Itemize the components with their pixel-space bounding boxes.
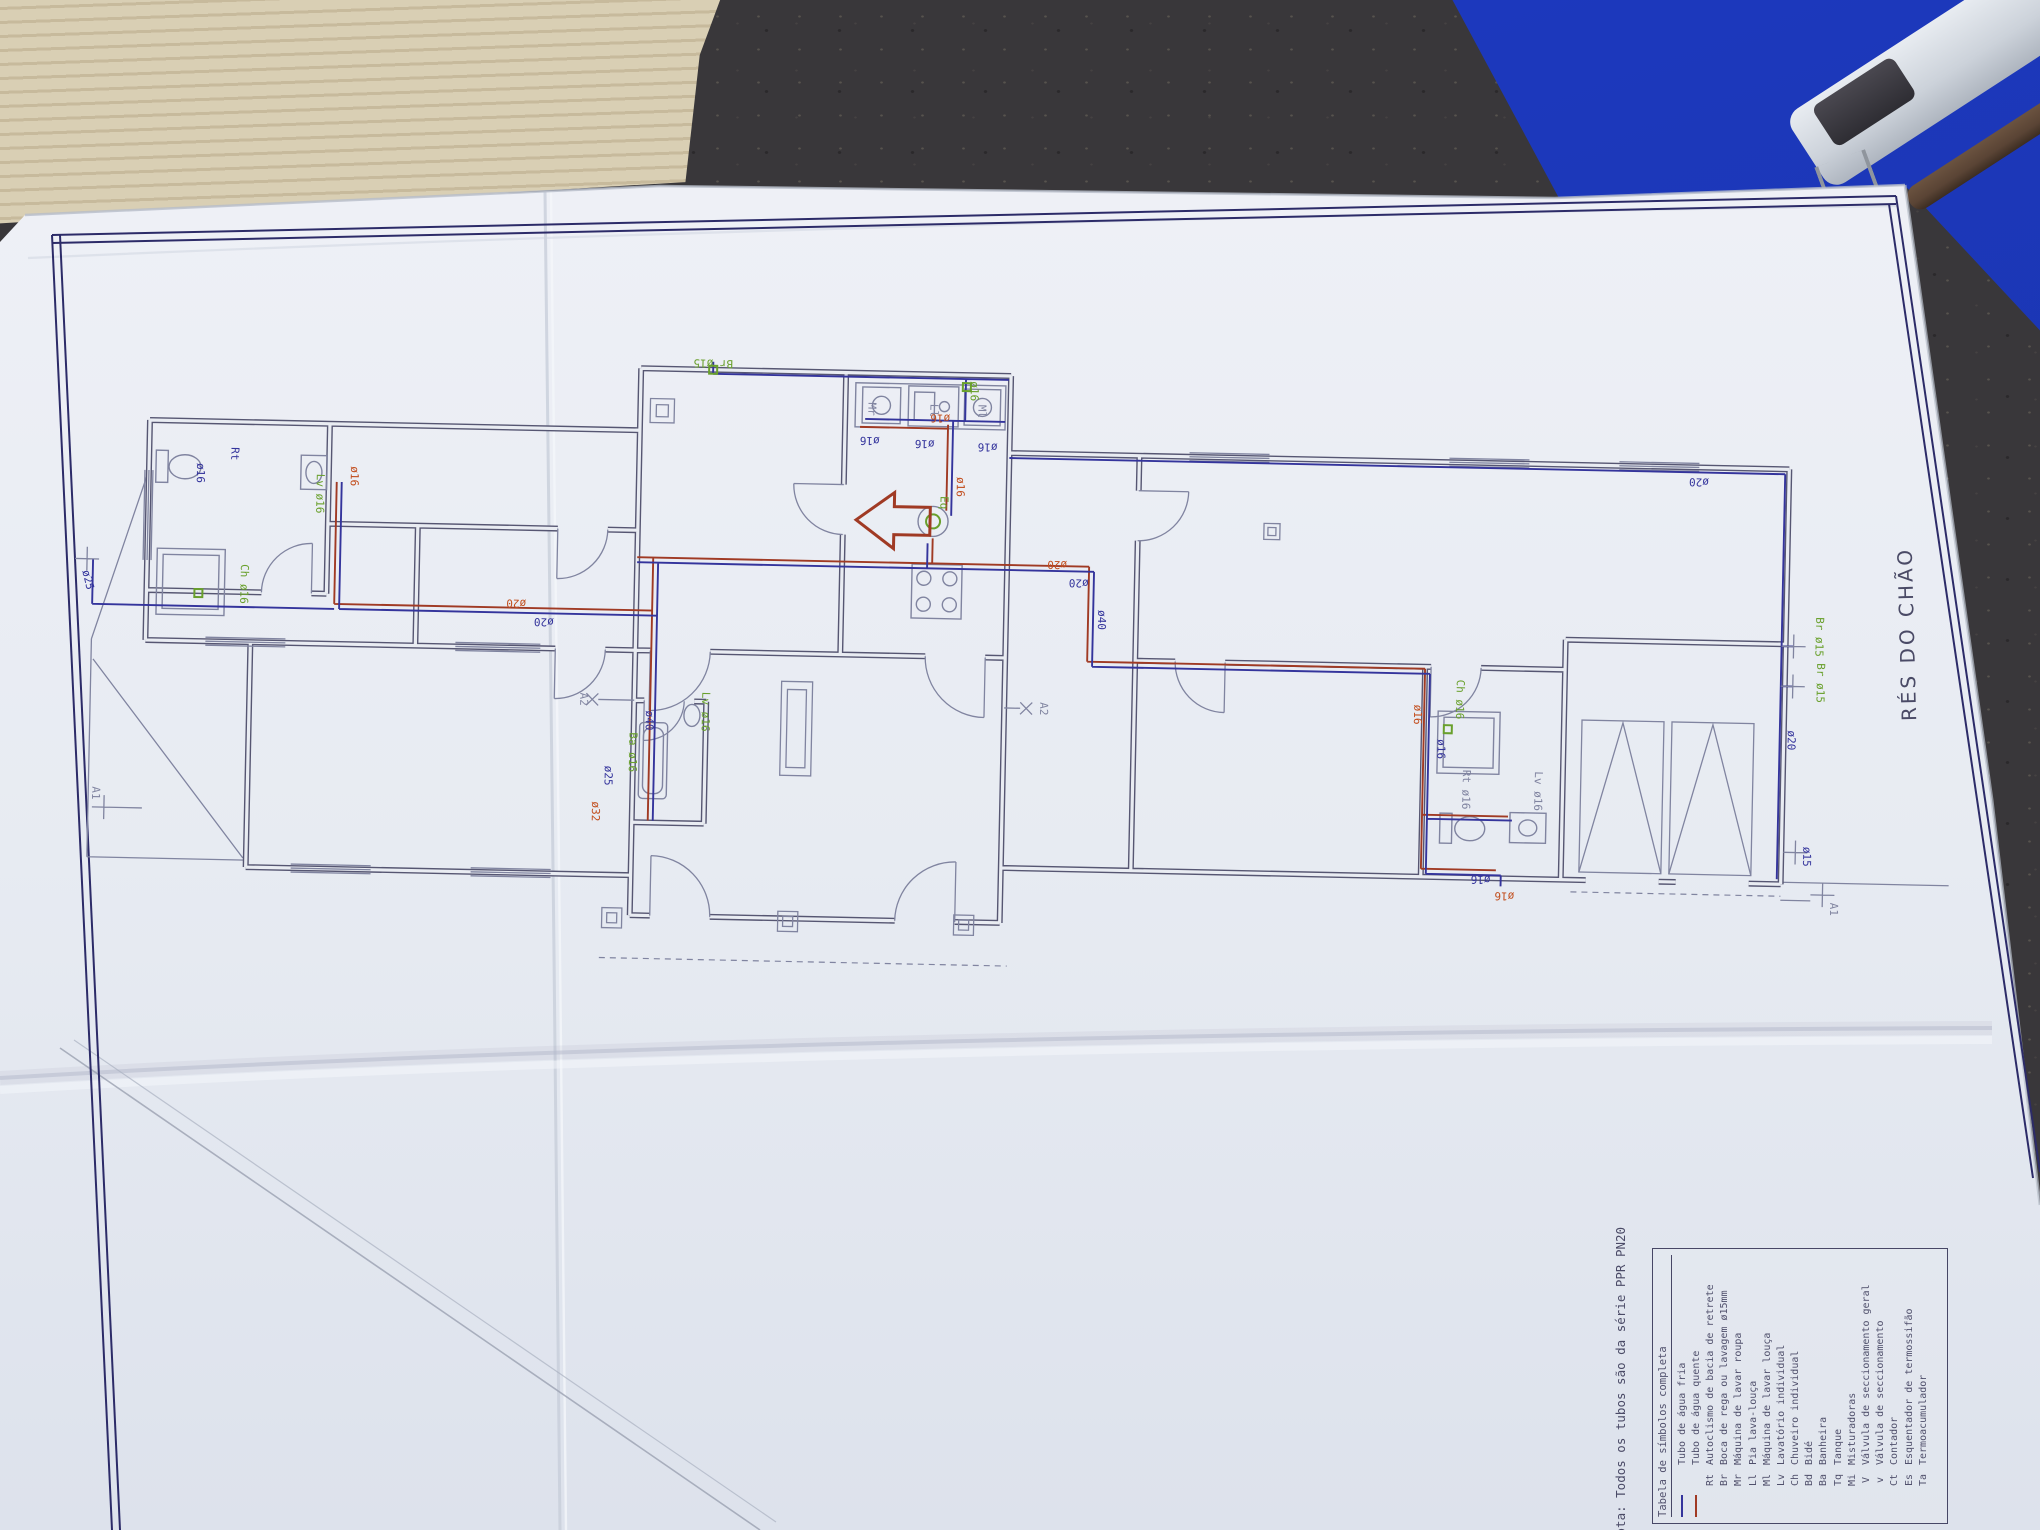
legend-swatch <box>1809 1495 1811 1517</box>
plan-label: ø40 <box>1095 610 1108 630</box>
legend-label: Autoclismo de bacia de retrete <box>1705 1255 1716 1465</box>
legend-code: Tq <box>1833 1470 1844 1490</box>
legend-swatch <box>1780 1495 1782 1517</box>
legend-label: Tubo de água quente <box>1691 1255 1702 1465</box>
legend-label: Tanque <box>1833 1255 1844 1465</box>
plan-label: ø20 <box>1069 576 1089 589</box>
legend-swatch <box>1851 1495 1853 1517</box>
plan-label: Rt <box>228 447 241 461</box>
legend-code: Mr <box>1733 1470 1744 1490</box>
legend-swatch <box>1908 1495 1910 1517</box>
plan-label: A1 <box>1827 903 1840 917</box>
plan-label: ø16 <box>1494 889 1514 902</box>
legend-row: V Válvula de seccionamento geral <box>1859 1255 1873 1517</box>
legend-code: Rt <box>1705 1470 1716 1490</box>
legend-label: Misturadoras <box>1847 1255 1858 1465</box>
legend-row: Ta Termoacumulador <box>1916 1255 1930 1517</box>
legend-row: Mi Misturadoras <box>1845 1255 1859 1517</box>
legend-row: Bd Bidé <box>1803 1255 1817 1517</box>
legend-code: Ml <box>1762 1470 1773 1490</box>
legend-label: Lavatório individual <box>1776 1255 1787 1465</box>
plan-label: Lv ø16 <box>699 692 713 732</box>
plan-label: Rt ø16 <box>1459 770 1473 810</box>
drawing-note: Nota: Todos os tubos são da série PPR PN… <box>1613 1213 1631 1530</box>
legend-code: Ta <box>1918 1470 1929 1490</box>
legend-swatch <box>1752 1495 1754 1517</box>
legend-swatch <box>1738 1495 1740 1517</box>
plan-label: ø15 <box>1800 847 1813 867</box>
legend-swatch <box>1837 1495 1839 1517</box>
plan-label: ø20 <box>1689 475 1709 488</box>
legend-row: Es Esquentador de termossifão <box>1902 1255 1916 1517</box>
legend-row: Ml Máquina de lavar louça <box>1760 1255 1774 1517</box>
legend-row: Rt Autoclismo de bacia de retrete <box>1703 1255 1717 1517</box>
plan-label: A2 <box>577 692 590 706</box>
plan-label: Ch ø16 <box>237 564 251 604</box>
legend-label: Termoacumulador <box>1918 1255 1929 1465</box>
plan-label: Ba ø16 <box>626 732 640 772</box>
plan-label: Lv ø16 <box>1531 771 1545 811</box>
plan-label: ø25 <box>601 766 614 786</box>
legend-label: Bidé <box>1804 1255 1815 1465</box>
legend-code: Es <box>1904 1470 1915 1490</box>
legend-swatch <box>1681 1495 1683 1517</box>
legend-code: Br <box>1719 1470 1730 1490</box>
legend-label: Chuveiro individual <box>1790 1255 1801 1465</box>
plan-label: ø20 <box>506 597 526 610</box>
plan-label: ø16 <box>954 477 967 497</box>
legend-swatch <box>1823 1495 1825 1517</box>
legend-label: Tubo de água fria <box>1677 1255 1688 1465</box>
legend-swatch <box>1880 1495 1882 1517</box>
legend-row: Tq Tanque <box>1831 1255 1845 1517</box>
plan-label: ø32 <box>589 801 602 821</box>
plan-label: Ll <box>927 404 940 418</box>
legend-row: Lv Lavatório individual <box>1774 1255 1788 1517</box>
plan-label: ø16 <box>978 440 998 453</box>
legend-code: Ll <box>1748 1470 1759 1490</box>
legend-code: Ba <box>1818 1470 1829 1490</box>
legend-label: Pia lava-louça <box>1748 1255 1759 1465</box>
legend-label: Máquina de lavar louça <box>1762 1255 1773 1465</box>
legend-code: Ct <box>1889 1470 1900 1490</box>
legend-row: Br Boca de rega ou lavagem ø15mm <box>1718 1255 1732 1517</box>
plan-label: Br ø15 <box>1812 617 1826 657</box>
plan-label: Lv ø16 <box>313 474 327 514</box>
legend-code: v <box>1875 1470 1886 1490</box>
legend-row: Tubo de água quente <box>1689 1255 1703 1517</box>
plan-label: ø16 <box>860 434 880 447</box>
legend-code: Ch <box>1790 1470 1801 1490</box>
plan-label: Ml <box>975 405 988 419</box>
legend-swatch <box>1922 1495 1924 1517</box>
legend-row: Tubo de água fria <box>1675 1255 1689 1517</box>
legend-row: Ct Contador <box>1888 1255 1902 1517</box>
plan-label: A1 <box>89 786 102 800</box>
legend-swatch <box>1724 1495 1726 1517</box>
plan-label: ø16 <box>348 466 361 486</box>
plan-label: Br ø15 <box>693 356 733 370</box>
legend-label: Válvula de seccionamento <box>1875 1255 1886 1465</box>
plan-label: Ch ø16 <box>1453 679 1467 719</box>
page-title: RÉS DO CHÃO <box>1893 549 1927 722</box>
legend-label: Válvula de seccionamento geral <box>1861 1255 1872 1465</box>
legend-label: Esquentador de termossifão <box>1904 1255 1915 1465</box>
plan-label: Eq <box>937 496 950 510</box>
plan-label: ø16 <box>968 381 981 401</box>
legend-table: Tabela de símbolos completa Tubo de água… <box>1652 1248 1948 1524</box>
legend-swatch <box>1795 1495 1797 1517</box>
plan-label: ø20 <box>534 615 554 628</box>
legend-swatch <box>1894 1495 1896 1517</box>
plan-label: ø16 <box>1411 705 1424 725</box>
legend-label: Máquina de lavar roupa <box>1733 1255 1744 1465</box>
legend-row: Ba Banheira <box>1817 1255 1831 1517</box>
legend-label: Contador <box>1889 1255 1900 1465</box>
legend-row: Ll Pia lava-louça <box>1746 1255 1760 1517</box>
plan-label: ø16 <box>1471 873 1491 886</box>
legend-code: V <box>1861 1470 1872 1490</box>
legend-swatch <box>1766 1495 1768 1517</box>
plan-label: ø16 <box>194 463 207 483</box>
legend-code: Mi <box>1847 1470 1858 1490</box>
plan-label: ø40 <box>643 710 656 730</box>
legend-label: Banheira <box>1818 1255 1829 1465</box>
plan-label: ø20 <box>1047 558 1067 571</box>
plan-label: Br ø15 <box>1813 663 1827 703</box>
plan-label: A2 <box>1037 702 1050 716</box>
legend-code: Lv <box>1776 1470 1787 1490</box>
legend-swatch <box>1695 1495 1697 1517</box>
plan-label: Mr <box>865 402 878 416</box>
legend-code: Bd <box>1804 1470 1815 1490</box>
photo-scene: ø25ø16RtCh ø16Lv ø16ø16ø20ø20A1Lv ø16Ba … <box>0 0 2040 1530</box>
legend-title: Tabela de símbolos completa <box>1657 1255 1672 1517</box>
legend-row: Ch Chuveiro individual <box>1789 1255 1803 1517</box>
legend-label: Boca de rega ou lavagem ø15mm <box>1719 1255 1730 1465</box>
plan-label: ø16 <box>915 437 935 450</box>
plan-label: ø20 <box>1784 730 1797 750</box>
legend-swatch <box>1866 1495 1868 1517</box>
legend-row: v Válvula de seccionamento <box>1874 1255 1888 1517</box>
plan-label: ø16 <box>1434 739 1447 759</box>
legend-swatch <box>1709 1495 1711 1517</box>
legend-row: Mr Máquina de lavar roupa <box>1732 1255 1746 1517</box>
